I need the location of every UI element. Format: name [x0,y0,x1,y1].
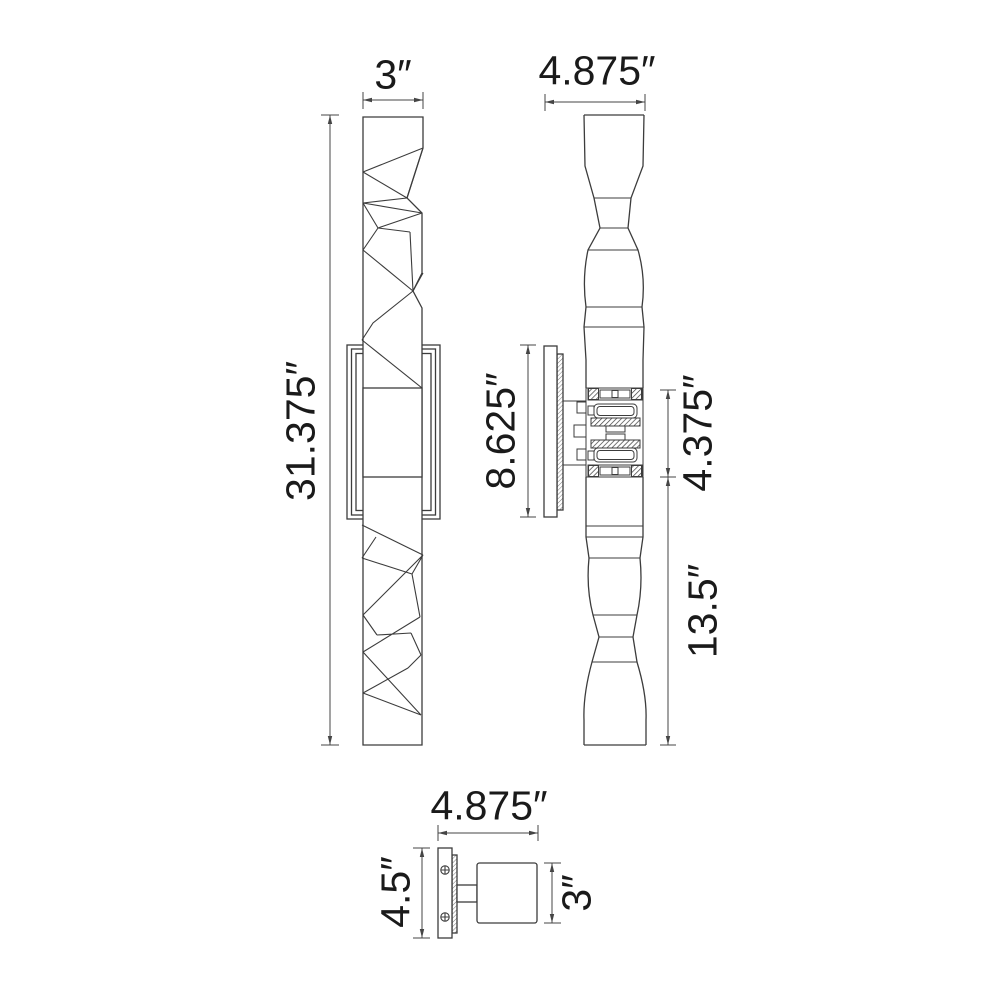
side-view-drawing [520,94,676,745]
technical-drawing-page: 3″ 31.375″ 4.875″ 8.625″ 4.375″ 13.5″ 4.… [0,0,1000,1000]
top-view-drawing [413,825,561,938]
top-plate-dimension-label: 4.5″ [376,856,417,928]
top-body [477,863,537,923]
side-center-dimension-label: 4.375″ [678,374,719,491]
top-body-dimension-label: 3″ [557,874,598,911]
side-backplate-dimension-label: 8.625″ [481,372,522,489]
top-screw-lower [441,913,449,921]
technical-drawing-svg [0,0,1000,1000]
front-center-band [363,388,422,477]
side-lower-dimension-label: 13.5″ [683,564,724,658]
front-height-dimension [321,115,339,745]
side-depth-dimension-label: 4.875″ [538,51,655,92]
side-depth-dimension [545,94,645,111]
top-arm [457,885,477,902]
front-width-dimension-label: 3″ [374,55,411,96]
front-view-drawing [321,92,440,745]
front-height-dimension-label: 31.375″ [281,361,322,501]
top-depth-dimension-label: 4.875″ [430,786,547,827]
top-screw-upper [441,866,449,874]
side-lower-dimension [660,477,676,745]
top-wall-plate [438,848,457,938]
